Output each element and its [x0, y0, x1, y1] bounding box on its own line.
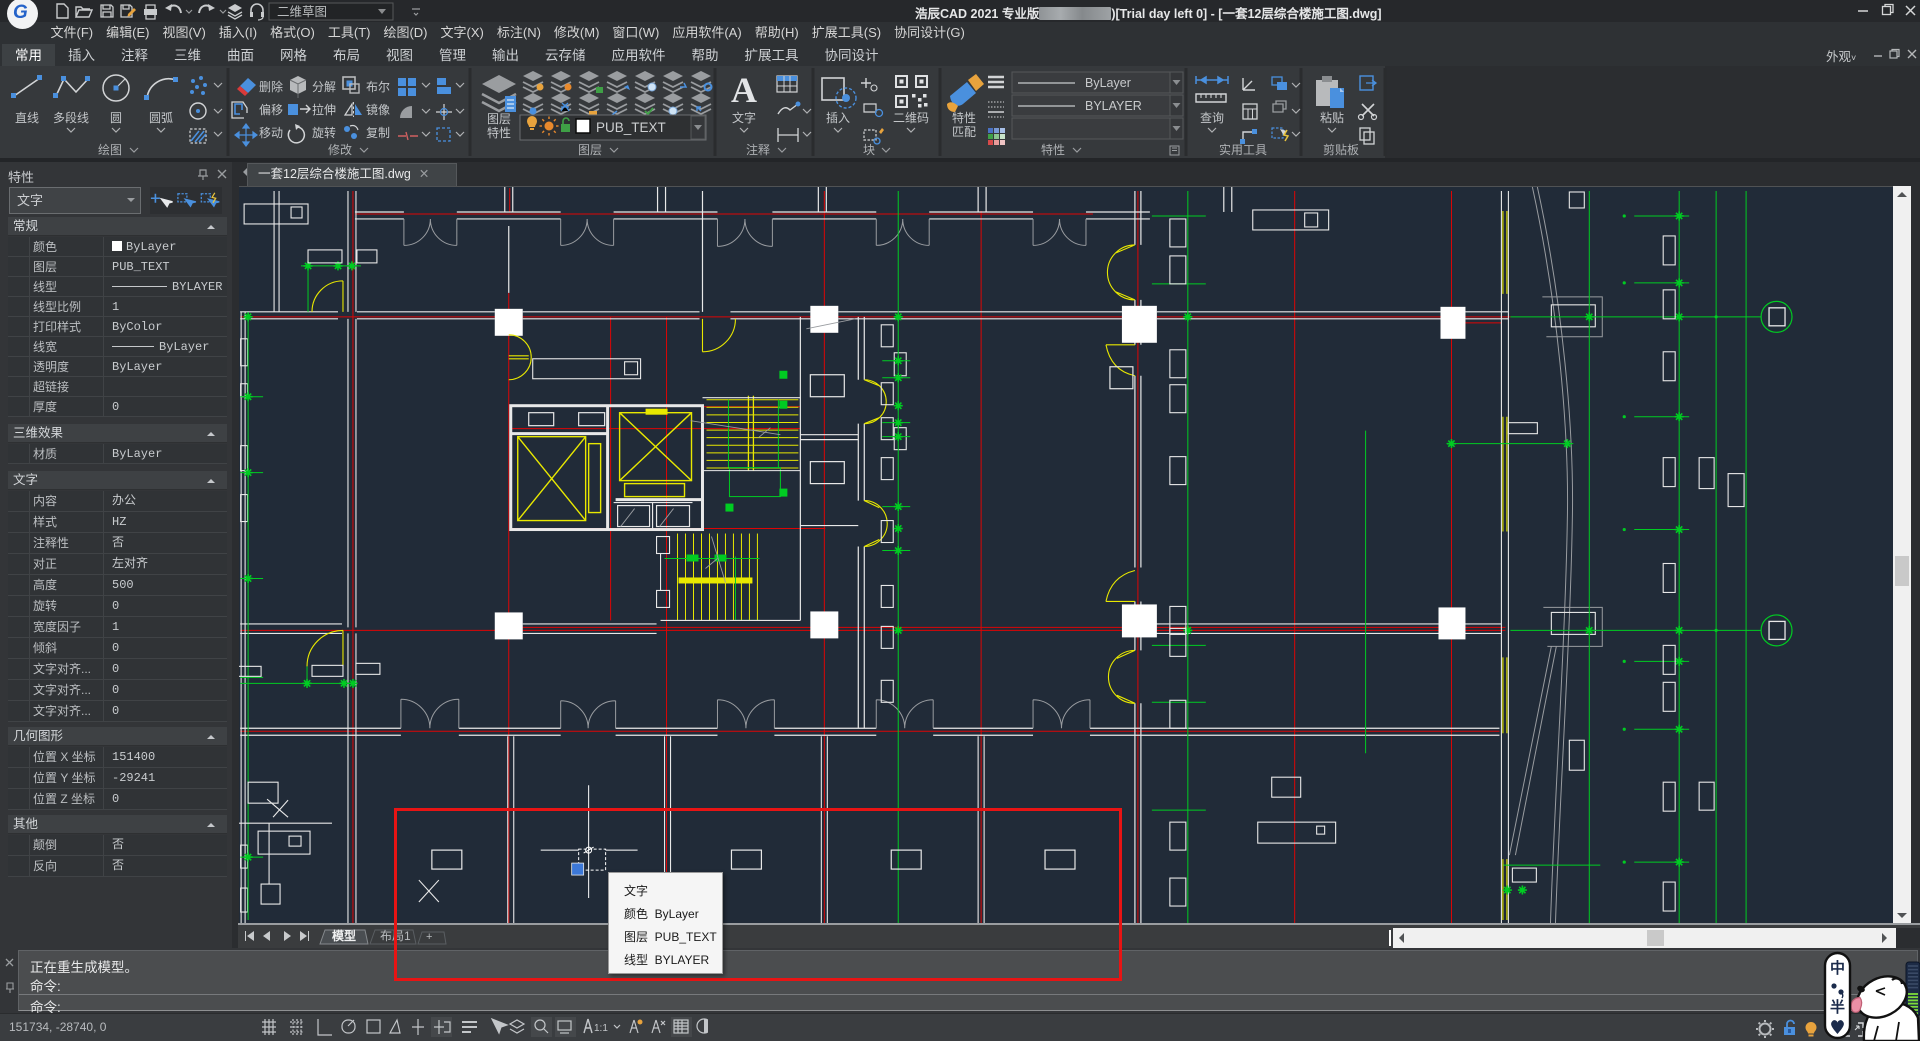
svg-text:分解: 分解 [312, 80, 336, 94]
svg-text:半: 半 [1830, 998, 1845, 1016]
svg-text:圆: 圆 [110, 111, 122, 125]
svg-text:模型: 模型 [332, 928, 356, 943]
svg-text:查询: 查询 [1200, 111, 1224, 125]
svg-text:二维码: 二维码 [893, 111, 929, 125]
svg-text:旋转: 旋转 [312, 125, 336, 140]
svg-text:块: 块 [863, 143, 875, 157]
svg-text:多段线: 多段线 [53, 110, 89, 125]
svg-text:插入: 插入 [826, 111, 850, 125]
svg-text:图层: 图层 [487, 112, 511, 126]
svg-text:PUB_TEXT: PUB_TEXT [596, 120, 666, 135]
svg-text:注释: 注释 [746, 142, 770, 157]
svg-text:A: A [731, 70, 757, 110]
svg-text:修改: 修改 [328, 142, 352, 157]
svg-text:删除: 删除 [259, 79, 283, 94]
svg-text:剪贴板: 剪贴板 [1323, 142, 1359, 157]
svg-text:特性: 特性 [487, 125, 511, 140]
svg-text:ByLayer: ByLayer [1085, 76, 1131, 90]
svg-text:1:1: 1:1 [594, 1023, 608, 1034]
svg-text:匹配: 匹配 [952, 125, 976, 139]
svg-text:文字: 文字 [732, 110, 756, 125]
svg-text:中: 中 [1830, 959, 1845, 977]
svg-text:二维草图: 二维草图 [277, 5, 327, 19]
svg-text:复制: 复制 [366, 126, 390, 140]
svg-text:特性: 特性 [952, 110, 976, 125]
svg-text:特性: 特性 [1041, 142, 1065, 157]
svg-text:圆弧: 圆弧 [149, 111, 173, 125]
svg-text:BYLAYER: BYLAYER [1085, 99, 1142, 113]
svg-text:布尔: 布尔 [366, 79, 390, 94]
svg-text:移动: 移动 [259, 126, 283, 140]
svg-text:偏移: 偏移 [259, 102, 283, 117]
svg-text:图层: 图层 [578, 143, 602, 157]
svg-text:绘图: 绘图 [98, 142, 122, 157]
svg-text:拉伸: 拉伸 [312, 102, 336, 117]
svg-text:实用工具: 实用工具 [1219, 142, 1267, 157]
svg-text:粘贴: 粘贴 [1320, 110, 1344, 125]
svg-text:直线: 直线 [15, 111, 39, 125]
svg-text:镜像: 镜像 [366, 102, 390, 117]
